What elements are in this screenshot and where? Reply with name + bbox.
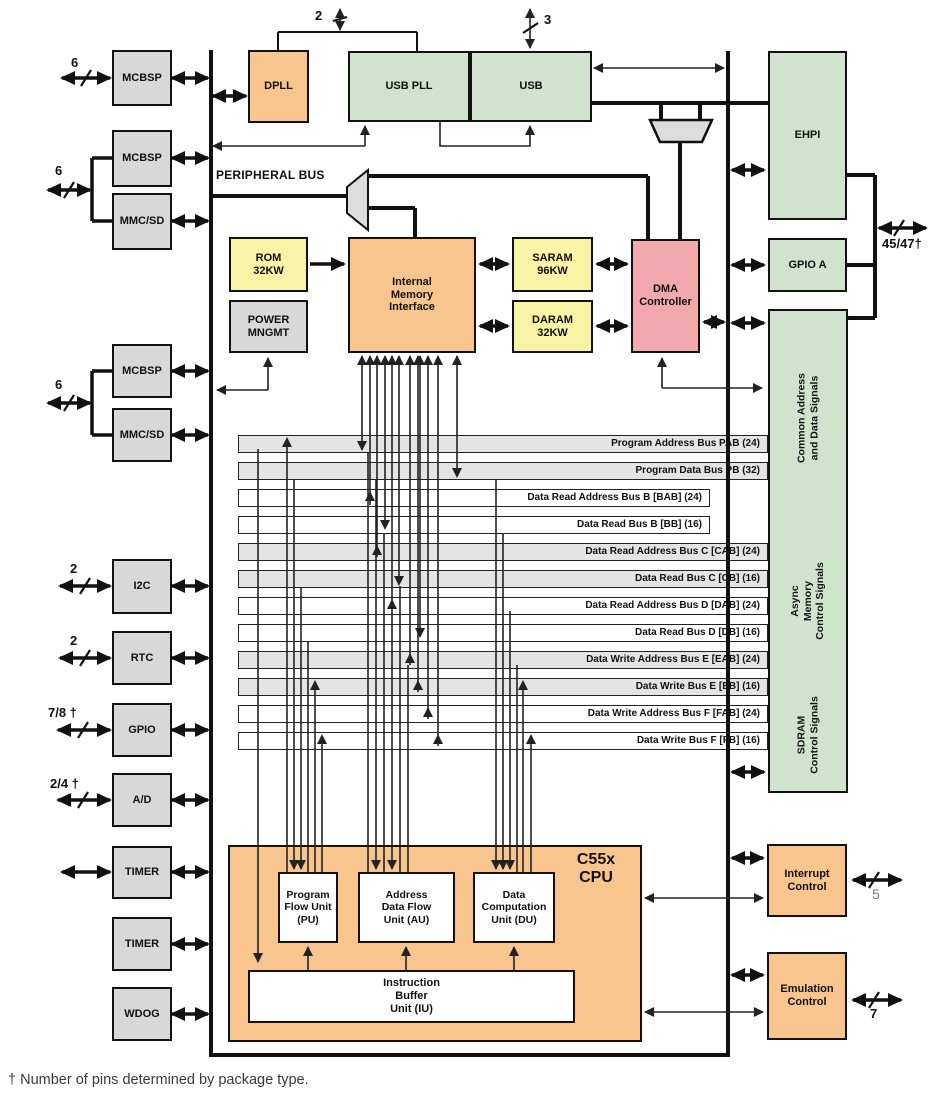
bus-bar-dab: Data Read Address Bus D [DAB] (24) bbox=[238, 597, 768, 615]
pin-count-group1: 6 bbox=[55, 163, 62, 178]
pin-count-emulation: 7 bbox=[870, 1006, 877, 1021]
pin-count-interrupt: 5 bbox=[872, 886, 880, 902]
block-mmcsd-1: MMC/SD bbox=[112, 193, 172, 250]
block-timer-2: TIMER bbox=[112, 917, 172, 971]
pin-count-gpio: 7/8 † bbox=[48, 705, 77, 720]
bus-bar-fb: Data Write Bus F [FB] (16) bbox=[238, 732, 768, 750]
block-internal-memory-interface: Internal Memory Interface bbox=[348, 237, 476, 353]
block-mmcsd-2: MMC/SD bbox=[112, 408, 172, 462]
block-rom: ROM 32KW bbox=[229, 237, 308, 292]
block-power-mngmt: POWER MNGMT bbox=[229, 300, 308, 353]
bus-bar-fab: Data Write Address Bus F [FAB] (24) bbox=[238, 705, 768, 723]
block-du: Data Computation Unit (DU) bbox=[473, 872, 555, 943]
block-saram: SARAM 96KW bbox=[512, 237, 593, 292]
pin-count-pll: 2 bbox=[315, 8, 322, 23]
pin-count-group2: 6 bbox=[55, 377, 62, 392]
block-iu: Instruction Buffer Unit (IU) bbox=[248, 970, 575, 1023]
pin-count-usb: 3 bbox=[544, 12, 551, 27]
block-usb-pll: USB PLL bbox=[348, 51, 470, 122]
bus-bar-cb: Data Read Bus C [CB] (16) bbox=[238, 570, 768, 588]
label-c55x-cpu: C55x CPU bbox=[556, 851, 636, 888]
block-mcbsp-2: MCBSP bbox=[112, 130, 172, 187]
block-gpio: GPIO bbox=[112, 703, 172, 757]
label-sdram-control-signals: SDRAM Control Signals bbox=[795, 640, 820, 830]
block-interrupt-control: Interrupt Control bbox=[767, 844, 847, 917]
bus-bar-pb: Program Data Bus PB (32) bbox=[238, 462, 768, 480]
pin-count-i2c: 2 bbox=[70, 561, 77, 576]
block-dma-controller: DMA Controller bbox=[631, 239, 700, 353]
block-usb: USB bbox=[470, 51, 592, 122]
block-emulation-control: Emulation Control bbox=[767, 952, 847, 1040]
block-pu: Program Flow Unit (PU) bbox=[278, 872, 338, 943]
peripheral-bus-mux bbox=[347, 170, 368, 230]
block-timer-1: TIMER bbox=[112, 846, 172, 899]
pin-count-ad: 2/4 † bbox=[50, 776, 79, 791]
bus-bar-cab: Data Read Address Bus C [CAB] (24) bbox=[238, 543, 768, 561]
block-i2c: I2C bbox=[112, 559, 172, 614]
bus-bar-eb: Data Write Bus E [EB] (16) bbox=[238, 678, 768, 696]
c55x-block-diagram: MCBSP MCBSP MMC/SD MCBSP MMC/SD I2C RTC … bbox=[0, 0, 936, 1100]
bus-bar-pab: Program Address Bus PAB (24) bbox=[238, 435, 768, 453]
block-ad: A/D bbox=[112, 773, 172, 827]
block-mcbsp-3: MCBSP bbox=[112, 344, 172, 398]
label-common-address-data-signals: Common Address and Data Signals bbox=[795, 323, 820, 513]
block-dpll: DPLL bbox=[248, 50, 309, 123]
mux-shapes bbox=[347, 120, 712, 230]
footnote: † Number of pins determined by package t… bbox=[8, 1072, 309, 1088]
block-gpio-a: GPIO A bbox=[768, 238, 847, 292]
block-au: Address Data Flow Unit (AU) bbox=[358, 872, 455, 943]
block-daram: DARAM 32KW bbox=[512, 300, 593, 353]
bus-bar-bab: Data Read Address Bus B [BAB] (24) bbox=[238, 489, 710, 507]
block-rtc: RTC bbox=[112, 631, 172, 685]
pin-count-rtc: 2 bbox=[70, 633, 77, 648]
usb-dma-mux bbox=[650, 120, 712, 142]
pin-count-ehpi-gpioa: 45/47† bbox=[882, 236, 922, 251]
bus-bar-bb: Data Read Bus B [BB] (16) bbox=[238, 516, 710, 534]
block-mcbsp-1: MCBSP bbox=[112, 50, 172, 106]
bus-bar-eab: Data Write Address Bus E [EAB] (24) bbox=[238, 651, 768, 669]
peripheral-bus-label: PERIPHERAL BUS bbox=[216, 168, 325, 182]
block-wdog: WDOG bbox=[112, 987, 172, 1041]
bus-bar-db: Data Read Bus D [DB] (16) bbox=[238, 624, 768, 642]
block-ehpi: EHPI bbox=[768, 51, 847, 220]
pin-count-mcbsp1: 6 bbox=[71, 55, 78, 70]
bar-arrowheads bbox=[282, 437, 536, 744]
